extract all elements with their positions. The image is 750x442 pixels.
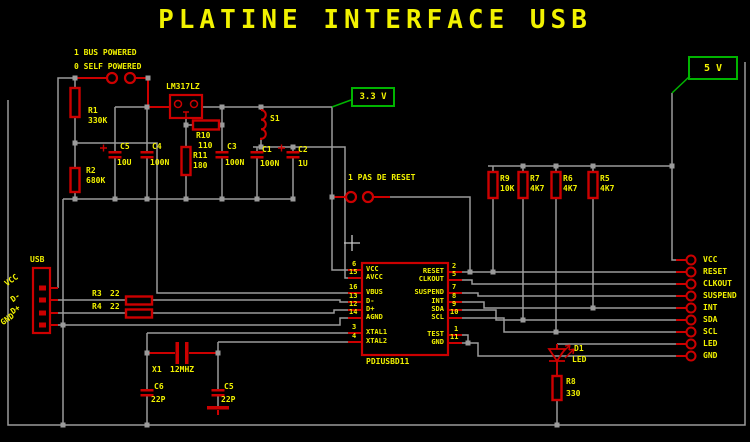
ground-symbol (207, 406, 229, 415)
ic-pin-num: 14 (349, 309, 357, 316)
label-c6-value: 22P (151, 396, 165, 404)
label-c5b-ref: C5 (224, 383, 234, 391)
ic-pin-num: 16 (349, 284, 357, 291)
label-c6-ref: C6 (154, 383, 164, 391)
resistor-r11[interactable] (182, 147, 191, 175)
label-c1-value: 100N (260, 160, 279, 168)
supply-box-5v[interactable]: 5 V (688, 56, 738, 80)
regulator-pin-mark (191, 101, 198, 108)
label-c5b-value: 22P (221, 396, 235, 404)
label-r7-value: 4K7 (530, 185, 544, 193)
pad-scl[interactable] (687, 328, 696, 337)
ic-pin-label: SDA (364, 306, 444, 313)
pad-label-reset: RESET (703, 268, 727, 276)
junction-dots (61, 76, 675, 428)
ic-pin-label: GND (364, 339, 444, 346)
resistor-r1[interactable] (71, 88, 80, 117)
resistor-r2[interactable] (71, 168, 80, 192)
label-r9-ref: R9 (500, 175, 510, 183)
label-r6-value: 4K7 (563, 185, 577, 193)
cursor-crosshair (344, 235, 360, 251)
label-r1-value: 330K (88, 117, 107, 125)
ic-pin-num: 4 (352, 333, 356, 340)
pad-int[interactable] (687, 304, 696, 313)
ic-pin-num: 13 (349, 293, 357, 300)
ic-pin-label: TEST (364, 331, 444, 338)
jumper-option-self-label: 0 SELF POWERED (74, 63, 141, 71)
label-r4-ref: R4 (92, 303, 102, 311)
label-s1-ref: S1 (270, 115, 280, 123)
jumper-pad-reset-a[interactable] (346, 192, 356, 202)
pad-reset[interactable] (687, 268, 696, 277)
label-r11-value: 180 (193, 162, 207, 170)
label-d1-value: LED (572, 356, 586, 364)
schematic-canvas: PLATINE INTERFACE USB 1 BUS POWERED 0 SE… (0, 0, 750, 442)
pad-label-suspend: SUSPEND (703, 292, 737, 300)
ic-pin-num: 7 (452, 284, 456, 291)
schematic-title: PLATINE INTERFACE USB (90, 6, 660, 34)
label-r5-value: 4K7 (600, 185, 614, 193)
ic-pin-num: 6 (352, 261, 356, 268)
pad-sda[interactable] (687, 316, 696, 325)
usb-connector[interactable] (33, 268, 50, 333)
label-c3-ref: C3 (227, 143, 237, 151)
ic-pin-num: 15 (349, 269, 357, 276)
frame-border (8, 62, 745, 425)
label-r3-value: 22 (110, 290, 120, 298)
label-c5-ref: C5 (120, 143, 130, 151)
usb-connector-pins (39, 286, 46, 328)
pad-label-clkout: CLKOUT (703, 280, 732, 288)
label-r6-ref: R6 (563, 175, 573, 183)
resistor-r6[interactable] (552, 172, 561, 198)
pad-vcc[interactable] (687, 256, 696, 265)
ic-pin-num: 5 (452, 271, 456, 278)
label-r2-value: 680K (86, 177, 105, 185)
label-ic-name: PDIUSBD11 (366, 358, 409, 366)
label-r10-ref: R10 (196, 132, 210, 140)
pad-led[interactable] (687, 340, 696, 349)
label-r8-ref: R8 (566, 378, 576, 386)
resistor-r4[interactable] (126, 310, 152, 318)
label-c2-value: 1U (298, 160, 308, 168)
label-regulator: LM317LZ (166, 83, 200, 91)
ic-pin-num: 8 (452, 293, 456, 300)
label-r3-ref: R3 (92, 290, 102, 298)
ic-pin-label: SCL (364, 314, 444, 321)
label-c4-value: 100N (150, 159, 169, 167)
label-r8-value: 330 (566, 390, 580, 398)
label-r1-ref: R1 (88, 107, 98, 115)
ic-pin-label: INT (364, 298, 444, 305)
label-x1-value: 12MHZ (170, 366, 194, 374)
label-r7-ref: R7 (530, 175, 540, 183)
label-x1-ref: X1 (152, 366, 162, 374)
ic-pin-label: SUSPEND (364, 289, 444, 296)
ic-pin-num: 1 (454, 326, 458, 333)
ic-pin-label: CLKOUT (364, 276, 444, 283)
jumper-pad-self[interactable] (125, 73, 135, 83)
pad-label-int: INT (703, 304, 717, 312)
supply-3v3-label: 3.3 V (359, 92, 386, 102)
regulator-pin-mark (175, 101, 182, 108)
led-d1[interactable] (549, 345, 574, 376)
regulator-lm317[interactable] (170, 95, 202, 118)
resistor-r9[interactable] (489, 172, 498, 198)
label-r10-value: 110 (198, 142, 212, 150)
resistor-r5[interactable] (589, 172, 598, 198)
resistor-r8[interactable] (553, 376, 562, 400)
pad-gnd[interactable] (687, 352, 696, 361)
ic-pin-num: 9 (452, 301, 456, 308)
jumper-option-bus-label: 1 BUS POWERED (74, 49, 137, 57)
label-r2-ref: R2 (86, 167, 96, 175)
regulator-adj-mark (183, 112, 189, 117)
jumper-pad-reset-b[interactable] (363, 192, 373, 202)
resistor-r10[interactable] (193, 121, 219, 130)
ic-pin-num: 12 (349, 301, 357, 308)
pad-label-sda: SDA (703, 316, 717, 324)
label-r11-ref: R11 (193, 152, 207, 160)
pad-label-vcc: VCC (703, 256, 717, 264)
ic-pin-num: 11 (450, 334, 458, 341)
net-wires (58, 78, 676, 425)
label-c2-ref: C2 (298, 146, 308, 154)
inductor-s1[interactable] (261, 110, 266, 140)
label-d1-ref: D1 (574, 345, 584, 353)
supply-5v-label: 5 V (704, 63, 722, 74)
label-r4-value: 22 (110, 303, 120, 311)
ic-pin-num: 2 (452, 263, 456, 270)
ic-pin-num: 3 (352, 324, 356, 331)
resistor-r3[interactable] (126, 297, 152, 305)
pad-label-led: LED (703, 340, 717, 348)
ic-pin-num: 10 (450, 309, 458, 316)
label-c5-value: 10U (117, 159, 131, 167)
supply-box-3v3[interactable]: 3.3 V (351, 87, 395, 107)
pad-clkout[interactable] (687, 280, 696, 289)
label-r9-value: 10K (500, 185, 514, 193)
pad-label-gnd: GND (703, 352, 717, 360)
jumper-pad-bus[interactable] (107, 73, 117, 83)
label-r5-ref: R5 (600, 175, 610, 183)
label-c3-value: 100N (225, 159, 244, 167)
pad-suspend[interactable] (687, 292, 696, 301)
pad-label-scl: SCL (703, 328, 717, 336)
label-c1-ref: C1 (262, 146, 272, 154)
jumper-option-reset-label: 1 PAS DE RESET (348, 174, 415, 182)
resistor-r7[interactable] (519, 172, 528, 198)
label-usb: USB (30, 256, 44, 264)
ic-pin-label: RESET (364, 268, 444, 275)
label-c4-ref: C4 (152, 143, 162, 151)
crystal-x1[interactable] (176, 342, 189, 364)
